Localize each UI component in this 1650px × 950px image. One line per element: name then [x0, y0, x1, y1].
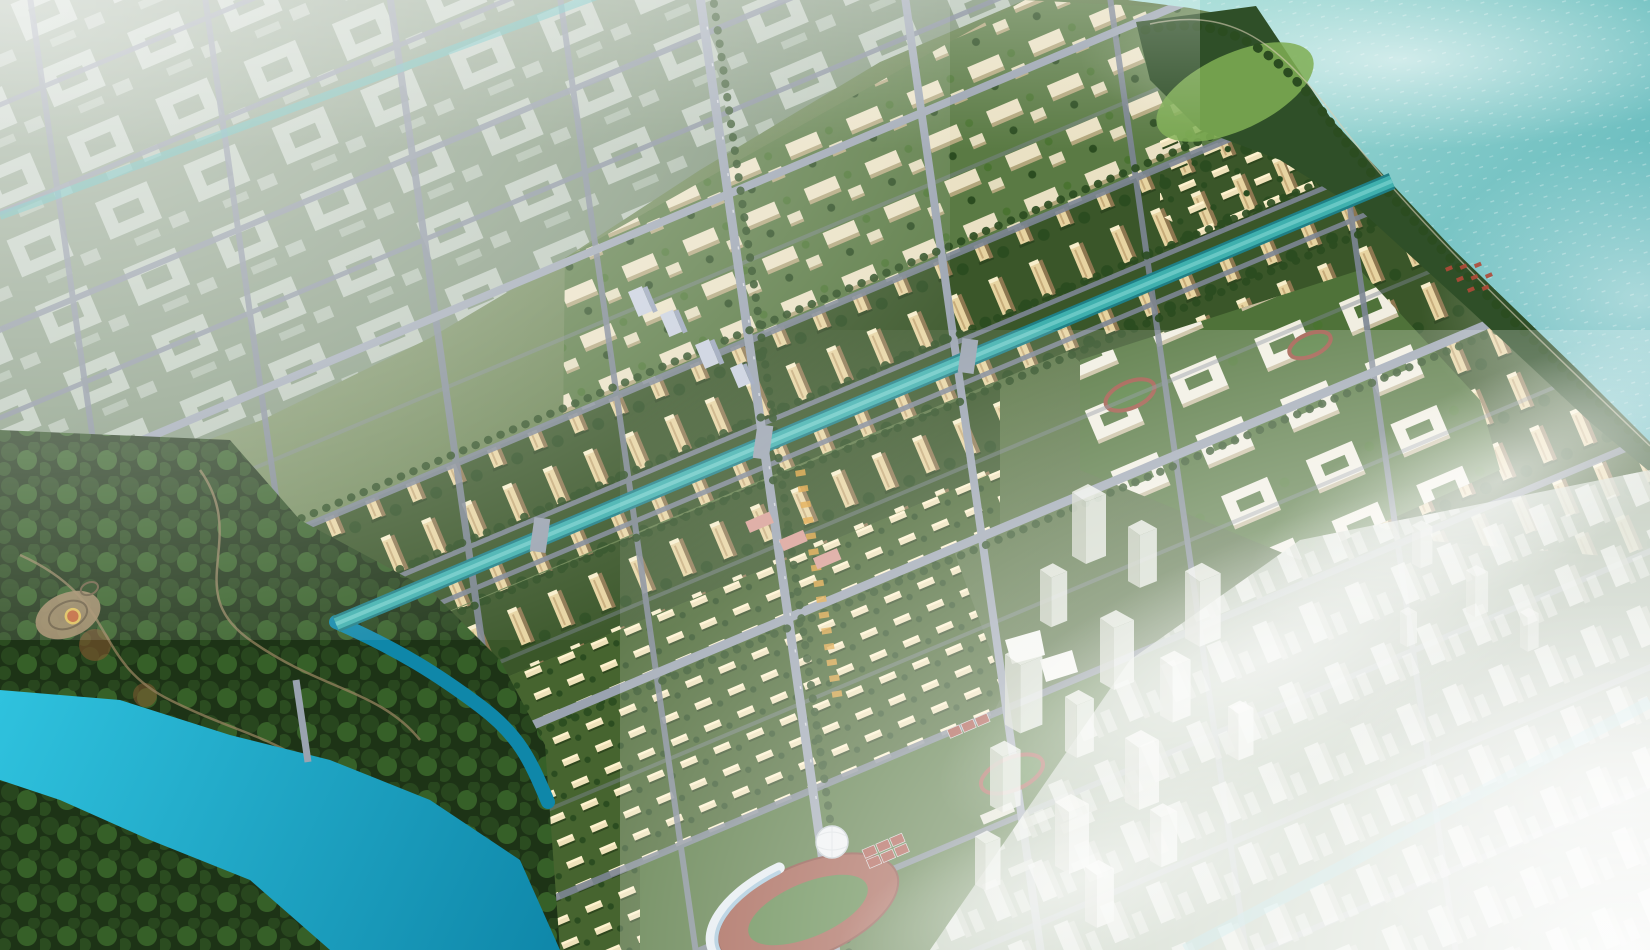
scene-root: Coastal masterplan aerial rendering Bird…	[0, 0, 1650, 950]
masterplan-rendering: Coastal masterplan aerial rendering Bird…	[0, 0, 1650, 950]
haze-top-edge	[0, 0, 1200, 150]
autumn-foliage	[133, 683, 157, 707]
